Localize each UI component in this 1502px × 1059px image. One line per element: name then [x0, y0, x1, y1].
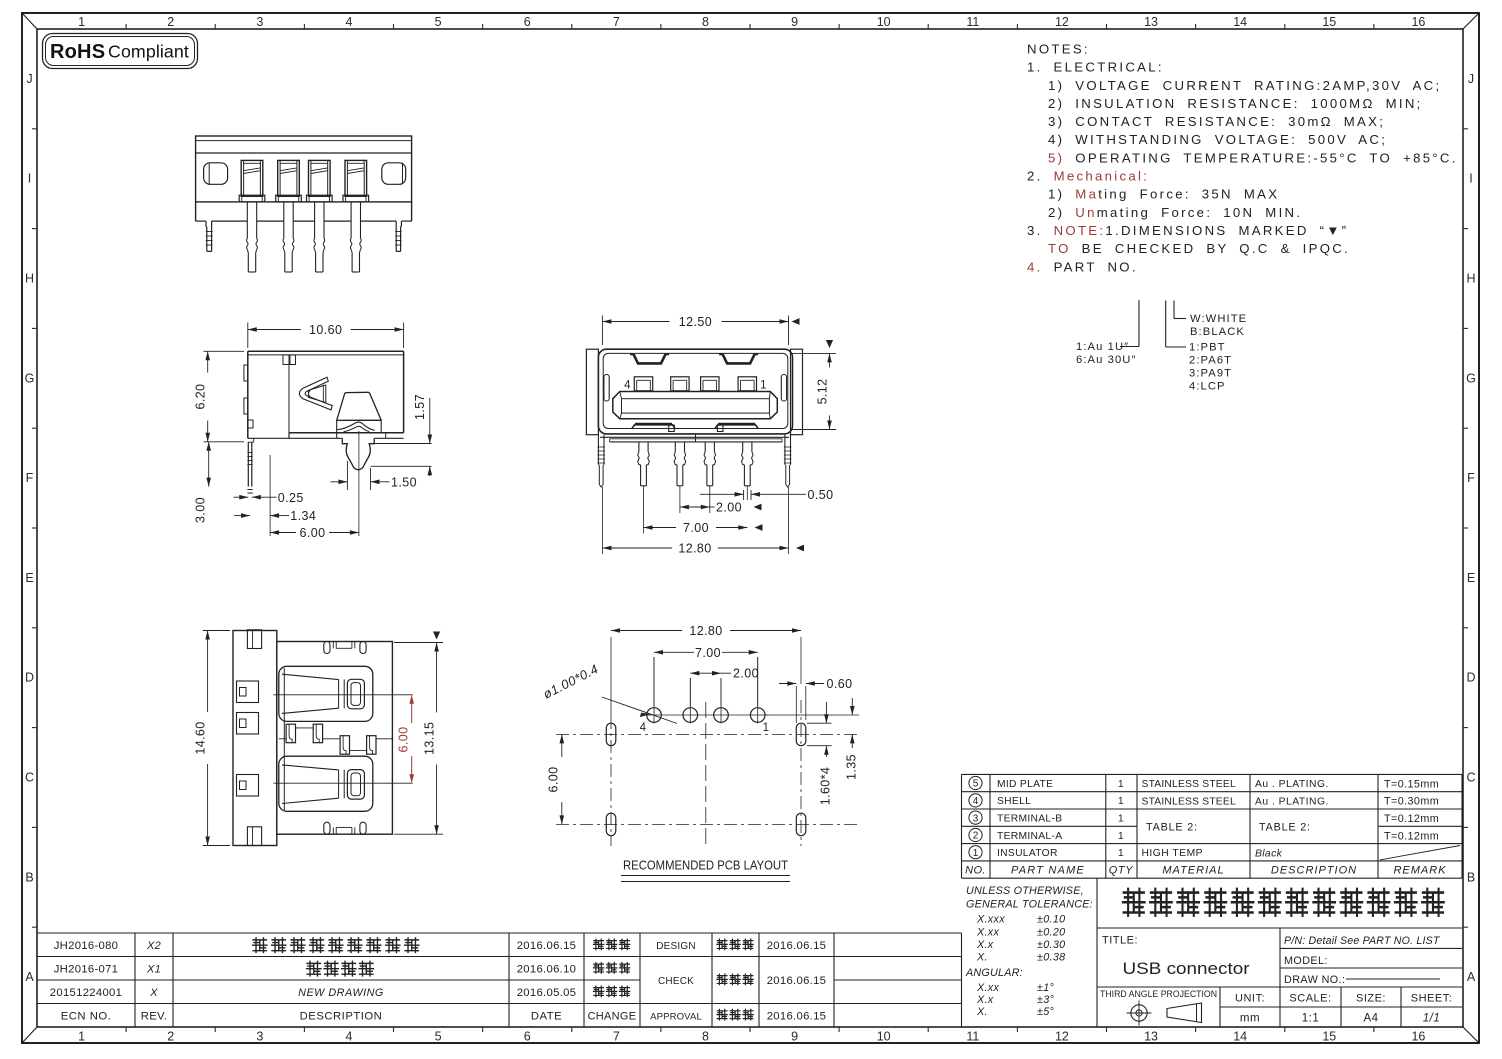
svg-text:16: 16: [1411, 15, 1425, 29]
svg-text:MID PLATE: MID PLATE: [997, 779, 1053, 790]
svg-text:TERMINAL-B: TERMINAL-B: [997, 813, 1062, 824]
svg-text:1: 1: [78, 1030, 85, 1044]
svg-text:B:BLACK: B:BLACK: [1190, 326, 1245, 338]
svg-text:T=0.12mm: T=0.12mm: [1384, 830, 1439, 842]
svg-text:T=0.15mm: T=0.15mm: [1384, 778, 1439, 790]
svg-text:E: E: [25, 571, 33, 585]
svg-text:6.20: 6.20: [194, 384, 208, 410]
svg-text:6: 6: [524, 15, 531, 29]
svg-text:15: 15: [1322, 1030, 1336, 1044]
svg-text:9: 9: [791, 15, 798, 29]
svg-text:2016.06.10: 2016.06.10: [517, 964, 577, 976]
svg-text:14: 14: [1233, 1030, 1247, 1044]
svg-text:F: F: [1467, 471, 1475, 485]
svg-text:TITLE:: TITLE:: [1102, 935, 1138, 947]
svg-text:D: D: [1466, 671, 1475, 685]
svg-text:2: 2: [167, 15, 174, 29]
svg-text:6: 6: [524, 1030, 531, 1044]
svg-text:5: 5: [973, 779, 979, 790]
svg-text:JH2016-071: JH2016-071: [54, 964, 119, 976]
svg-text:TABLE 2:: TABLE 2:: [1146, 821, 1198, 833]
svg-text:0.25: 0.25: [278, 491, 304, 505]
svg-text:2:PA6T: 2:PA6T: [1189, 355, 1232, 367]
svg-text:APPROVAL: APPROVAL: [650, 1011, 702, 1022]
svg-text:RECOMMENDED PCB LAYOUT: RECOMMENDED PCB LAYOUT: [623, 858, 788, 873]
svg-text:4:LCP: 4:LCP: [1189, 381, 1226, 393]
svg-text:1.34: 1.34: [290, 509, 316, 523]
svg-text:PART NAME: PART NAME: [1011, 865, 1085, 877]
svg-text:B: B: [25, 870, 33, 884]
svg-text:15: 15: [1322, 15, 1336, 29]
svg-text:13: 13: [1144, 1030, 1158, 1044]
svg-text:GENERAL TOLERANCE:: GENERAL TOLERANCE:: [966, 899, 1093, 911]
svg-text:6.00: 6.00: [547, 767, 561, 793]
svg-text:6:Au 30U″: 6:Au 30U″: [1076, 354, 1137, 366]
svg-text:1. ELECTRICAL:: 1. ELECTRICAL:: [1027, 60, 1164, 75]
svg-text:SIZE:: SIZE:: [1356, 993, 1386, 1005]
svg-text:1: 1: [1118, 795, 1124, 807]
svg-text:1: 1: [763, 722, 770, 734]
svg-text:G: G: [1466, 371, 1476, 385]
svg-text:10: 10: [877, 1030, 891, 1044]
svg-text:X1: X1: [146, 964, 161, 976]
svg-text:2.00: 2.00: [716, 501, 742, 515]
svg-text:JH2016-080: JH2016-080: [54, 940, 119, 952]
svg-text:D: D: [25, 671, 34, 685]
svg-text:X: X: [149, 987, 158, 999]
svg-text:2) INSULATION RESISTANCE: 1000: 2) INSULATION RESISTANCE: 1000MΩ MIN;: [1048, 96, 1423, 111]
svg-text:Au . PLATING.: Au . PLATING.: [1255, 796, 1329, 807]
svg-text:2016.06.15: 2016.06.15: [517, 940, 577, 952]
svg-text:SCALE:: SCALE:: [1289, 993, 1331, 1005]
svg-text:1) Mating Force: 35N MAX: 1) Mating Force: 35N MAX: [1048, 187, 1279, 202]
svg-text:7.00: 7.00: [683, 521, 709, 535]
svg-text:T=0.12mm: T=0.12mm: [1384, 813, 1439, 825]
svg-text:X.xxx: X.xxx: [976, 914, 1005, 926]
svg-text:2) Unmating Force: 10N MIN.: 2) Unmating Force: 10N MIN.: [1048, 205, 1302, 220]
svg-text:1:Au 1U″: 1:Au 1U″: [1076, 341, 1129, 353]
svg-text:I: I: [28, 172, 31, 186]
svg-text:H: H: [25, 272, 34, 286]
svg-text:G: G: [25, 371, 35, 385]
svg-text:10: 10: [877, 15, 891, 29]
svg-text:2016.06.15: 2016.06.15: [767, 940, 827, 952]
svg-text:2: 2: [167, 1030, 174, 1044]
svg-text:F: F: [26, 471, 34, 485]
svg-text:DATE: DATE: [531, 1011, 562, 1023]
svg-text:NO.: NO.: [965, 865, 986, 877]
svg-text:1:1: 1:1: [1302, 1013, 1320, 1025]
svg-text:DESCRIPTION: DESCRIPTION: [1271, 865, 1357, 877]
svg-text:STAINLESS STEEL: STAINLESS STEEL: [1142, 779, 1236, 790]
svg-text:3: 3: [973, 813, 979, 824]
svg-text:±5°: ±5°: [1037, 1006, 1055, 1018]
svg-text:ANGULAR:: ANGULAR:: [965, 967, 1023, 979]
svg-text:7: 7: [613, 1030, 620, 1044]
svg-text:X.x: X.x: [976, 939, 994, 951]
svg-text:CHANGE: CHANGE: [588, 1011, 637, 1023]
svg-text:1: 1: [1118, 847, 1124, 859]
svg-text:1: 1: [1118, 830, 1124, 842]
svg-text:11: 11: [966, 1030, 979, 1044]
svg-text:C: C: [25, 771, 34, 785]
svg-text:CHECK: CHECK: [658, 976, 694, 987]
svg-text:10.60: 10.60: [309, 323, 342, 337]
svg-text:±0.38: ±0.38: [1037, 952, 1065, 964]
svg-text:E: E: [1467, 571, 1475, 585]
svg-text:14.60: 14.60: [193, 721, 207, 754]
svg-text:13.15: 13.15: [422, 722, 436, 755]
svg-text:3: 3: [256, 1030, 263, 1044]
svg-text:4: 4: [345, 1030, 352, 1044]
svg-text:1: 1: [1118, 778, 1124, 790]
svg-text:UNLESS OTHERWISE,: UNLESS OTHERWISE,: [966, 885, 1084, 897]
svg-text:1/1: 1/1: [1423, 1013, 1441, 1025]
svg-text:13: 13: [1144, 15, 1158, 29]
svg-text:1.50: 1.50: [391, 475, 417, 489]
svg-text:THIRD ANGLE PROJECTION: THIRD ANGLE PROJECTION: [1100, 989, 1217, 999]
svg-text:X.x: X.x: [976, 994, 994, 1006]
svg-text:6.00: 6.00: [300, 526, 326, 540]
svg-text:7.00: 7.00: [695, 646, 721, 660]
svg-text:2: 2: [973, 831, 979, 842]
svg-text:5.12: 5.12: [815, 378, 829, 404]
svg-text:REMARK: REMARK: [1393, 865, 1446, 877]
svg-text:3) CONTACT RESISTANCE: 30mΩ MA: 3) CONTACT RESISTANCE: 30mΩ MAX;: [1048, 114, 1385, 129]
svg-text:3.00: 3.00: [194, 497, 208, 523]
svg-text:SHELL: SHELL: [997, 796, 1031, 807]
svg-text:4: 4: [345, 15, 352, 29]
svg-text:3: 3: [256, 15, 263, 29]
svg-text:J: J: [26, 72, 32, 86]
svg-text:NOTES:: NOTES:: [1027, 42, 1090, 57]
svg-text:X.: X.: [976, 1006, 988, 1018]
svg-text:TABLE 2:: TABLE 2:: [1259, 821, 1311, 833]
svg-text:DRAW NO.:: DRAW NO.:: [1284, 974, 1345, 986]
svg-text:DESCRIPTION: DESCRIPTION: [300, 1011, 383, 1023]
svg-text:2016.06.15: 2016.06.15: [767, 975, 827, 987]
svg-text:mm: mm: [1240, 1013, 1260, 1025]
svg-text:H: H: [1466, 272, 1475, 286]
svg-text:12: 12: [1055, 1030, 1069, 1044]
svg-text:A: A: [1467, 970, 1476, 984]
svg-text:4: 4: [624, 380, 631, 392]
svg-text:1:PBT: 1:PBT: [1189, 342, 1226, 354]
svg-text:20151224001: 20151224001: [50, 987, 122, 999]
svg-text:5) OPERATING TEMPERATURE:-55°C: 5) OPERATING TEMPERATURE:-55°C TO +85°C.: [1048, 150, 1458, 165]
svg-text:4. PART NO.: 4. PART NO.: [1027, 259, 1138, 274]
svg-text:12.50: 12.50: [679, 315, 712, 329]
svg-text:RoHS: RoHS: [50, 41, 105, 63]
svg-text:Au . PLATING.: Au . PLATING.: [1255, 779, 1329, 790]
svg-text:1.35: 1.35: [845, 754, 859, 780]
svg-text:1.60*4: 1.60*4: [819, 767, 833, 806]
svg-text:2.00: 2.00: [733, 667, 759, 681]
svg-text:1.57: 1.57: [413, 394, 427, 420]
svg-text:X.: X.: [976, 952, 988, 964]
svg-text:I: I: [1469, 172, 1472, 186]
svg-text:4: 4: [640, 722, 647, 734]
svg-text:Black: Black: [1255, 848, 1283, 860]
svg-text:2016.05.05: 2016.05.05: [517, 987, 577, 999]
svg-text:2016.06.15: 2016.06.15: [767, 1010, 827, 1022]
svg-text:A: A: [25, 970, 34, 984]
svg-text:MATERIAL: MATERIAL: [1162, 865, 1224, 877]
svg-text:1: 1: [973, 848, 979, 859]
svg-text:X2: X2: [146, 940, 161, 952]
svg-text:W:WHITE: W:WHITE: [1190, 313, 1247, 325]
svg-text:J: J: [1468, 72, 1474, 86]
svg-text:±0.20: ±0.20: [1037, 927, 1065, 939]
svg-text:X.xx: X.xx: [976, 982, 999, 994]
svg-text:TERMINAL-A: TERMINAL-A: [997, 831, 1062, 842]
svg-text:DESIGN: DESIGN: [656, 941, 696, 952]
svg-text:P/N: Detail See PART NO. LIST: P/N: Detail See PART NO. LIST: [1284, 935, 1441, 947]
svg-text:12: 12: [1055, 15, 1069, 29]
svg-text:B: B: [1467, 870, 1475, 884]
svg-text:T=0.30mm: T=0.30mm: [1384, 796, 1439, 808]
svg-text:A4: A4: [1363, 1013, 1378, 1025]
svg-text:4: 4: [973, 796, 979, 807]
svg-text:6.00: 6.00: [397, 727, 411, 753]
svg-text:USB connector: USB connector: [1123, 959, 1250, 978]
svg-text:X.xx: X.xx: [976, 927, 999, 939]
svg-text:REV.: REV.: [141, 1011, 168, 1023]
svg-text:9: 9: [791, 1030, 798, 1044]
svg-text:±0.30: ±0.30: [1037, 939, 1065, 951]
svg-text:0.50: 0.50: [808, 488, 834, 502]
svg-text:MODEL:: MODEL:: [1284, 955, 1328, 967]
svg-text:HIGH TEMP: HIGH TEMP: [1142, 848, 1204, 859]
svg-text:2. Mechanical:: 2. Mechanical:: [1027, 169, 1149, 184]
svg-text:12.80: 12.80: [689, 624, 722, 638]
svg-text:C: C: [1466, 771, 1475, 785]
svg-text:NEW DRAWING: NEW DRAWING: [298, 987, 384, 999]
svg-text:STAINLESS STEEL: STAINLESS STEEL: [1142, 796, 1236, 807]
svg-text:3:PA9T: 3:PA9T: [1189, 368, 1232, 380]
svg-text:1) VOLTAGE CURRENT RATING:2AMP: 1) VOLTAGE CURRENT RATING:2AMP,30V AC;: [1048, 78, 1441, 93]
svg-text:5: 5: [435, 1030, 442, 1044]
svg-text:TO BE CHECKED BY Q.C & IPQC.: TO BE CHECKED BY Q.C & IPQC.: [1048, 241, 1350, 256]
svg-text:Compliant: Compliant: [108, 42, 189, 62]
svg-text:8: 8: [702, 1030, 709, 1044]
svg-text:INSULATOR: INSULATOR: [997, 848, 1058, 859]
svg-text:14: 14: [1233, 15, 1247, 29]
svg-text:±3°: ±3°: [1037, 994, 1055, 1006]
svg-text:11: 11: [966, 15, 979, 29]
svg-text:12.80: 12.80: [678, 542, 711, 556]
svg-text:8: 8: [702, 15, 709, 29]
svg-text:1: 1: [78, 15, 85, 29]
svg-text:UNIT:: UNIT:: [1235, 993, 1265, 1005]
svg-text:±0.10: ±0.10: [1037, 914, 1065, 926]
svg-text:4) WITHSTANDING VOLTAGE: 500V: 4) WITHSTANDING VOLTAGE: 500V AC;: [1048, 132, 1387, 147]
svg-text:16: 16: [1411, 1030, 1425, 1044]
svg-text:ECN NO.: ECN NO.: [61, 1011, 112, 1023]
svg-text:5: 5: [435, 15, 442, 29]
svg-text:SHEET:: SHEET:: [1411, 993, 1453, 1005]
svg-text:3. NOTE:1.DIMENSIONS MARKED “▼: 3. NOTE:1.DIMENSIONS MARKED “▼”: [1027, 223, 1348, 238]
svg-text:±1°: ±1°: [1037, 982, 1055, 994]
svg-text:0.60: 0.60: [827, 677, 853, 691]
svg-text:1: 1: [760, 380, 767, 392]
svg-text:1: 1: [1118, 812, 1124, 824]
svg-text:7: 7: [613, 15, 620, 29]
svg-text:QTY: QTY: [1109, 865, 1133, 877]
